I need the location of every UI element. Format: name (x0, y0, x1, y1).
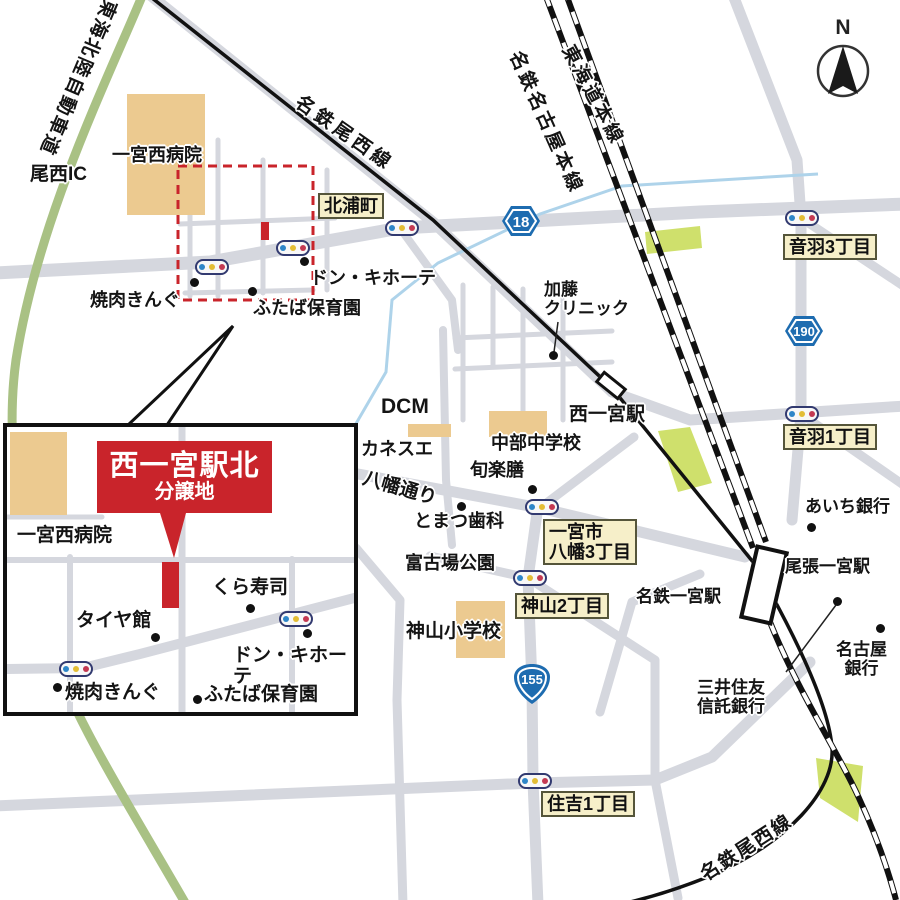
jr-meitetsu-rail-corridor (545, 0, 896, 900)
traffic-light-icon (785, 210, 819, 226)
onishi-ic-label: 尾西IC (30, 164, 87, 185)
inset-detail-map: 西一宮駅北 分譲地 一宮西病院 くら寿司 タイヤ館 ドン・キホーテ 焼肉きんぐ … (3, 423, 358, 716)
inset-yakiniku-king-label: 焼肉きんぐ (65, 682, 160, 703)
inset-hospital-block (10, 432, 67, 515)
poi-dot (190, 278, 199, 287)
site-banner-subtitle: 分譲地 (155, 482, 215, 503)
access-map: 18 190 155 N 東海北陸自動車道 名鉄尾西線 名鉄名古屋本線 東海道本… (0, 0, 900, 900)
inset-hospital-label: 一宮西病院 (17, 525, 112, 546)
otowa1-box: 音羽1丁目 (783, 424, 877, 450)
dcm-label: DCM (381, 395, 429, 419)
chubu-junior-high-label: 中部中学校 (491, 433, 581, 453)
traffic-light-icon (195, 259, 229, 275)
poi-dot (303, 629, 312, 638)
poi-dot (300, 257, 309, 266)
inset-don-quijote-label: ドン・キホーテ (233, 645, 354, 688)
site-banner: 西一宮駅北 分譲地 (97, 441, 272, 513)
kato-clinic-label: 加藤 クリニック (544, 280, 629, 318)
site-banner-title: 西一宮駅北 (109, 451, 259, 481)
route-190-shield: 190 (784, 314, 824, 353)
shunrakuzen-label: 旬楽膳 (470, 460, 524, 480)
smbc-trust-bank-label: 三井住友 信託銀行 (697, 678, 765, 716)
traffic-light-icon (518, 773, 552, 789)
owari-ichinomiya-station-label: 尾張一宮駅 (785, 557, 870, 576)
poi-dot (53, 683, 62, 692)
meitetsu-ichinomiya-station-label: 名鉄一宮駅 (636, 587, 721, 606)
hospital-label: 一宮西病院 (112, 145, 202, 165)
poi-dot (151, 633, 160, 642)
kamiyama-elementary-label: 神山小学校 (406, 621, 501, 642)
yawata3-line1: 一宮市 (549, 522, 631, 542)
route-155-shield: 155 (512, 663, 552, 710)
yawata3-line2: 八幡3丁目 (549, 542, 631, 562)
poi-dot (807, 523, 816, 532)
inset-kura-sushi-label: くら寿司 (212, 577, 288, 598)
poi-dot (876, 624, 885, 633)
poi-dot (528, 485, 537, 494)
traffic-light-icon (59, 661, 93, 677)
yakiniku-king-label: 焼肉きんぐ (90, 290, 180, 310)
kanesue-label: カネスエ (361, 439, 433, 459)
traffic-light-icon (785, 406, 819, 422)
don-quijote-label: ドン・キホーテ (310, 268, 436, 288)
poi-dot (457, 502, 466, 511)
compass-label: N (805, 18, 881, 38)
svg-text:190: 190 (793, 324, 815, 339)
traffic-light-icon (385, 220, 419, 236)
poi-dot (246, 604, 255, 613)
yawata3-box: 一宮市 八幡3丁目 (543, 519, 637, 565)
poi-dot (833, 597, 842, 606)
route-18-shield: 18 (501, 204, 541, 243)
fukoba-park-label: 富古場公園 (405, 553, 495, 573)
traffic-light-icon (276, 240, 310, 256)
otowa3-box: 音羽3丁目 (783, 234, 877, 260)
compass-north-icon: N (805, 18, 881, 108)
poi-dot (549, 351, 558, 360)
traffic-light-icon (513, 570, 547, 586)
sumiyoshi1-box: 住吉1丁目 (541, 791, 635, 817)
inset-tire-kan-label: タイヤ館 (76, 610, 151, 631)
traffic-light-icon (525, 499, 559, 515)
aichi-bank-label: あいち銀行 (805, 497, 890, 516)
svg-text:18: 18 (513, 214, 530, 231)
inset-callout-lines (128, 326, 233, 425)
site-marker-main (261, 222, 269, 240)
kitauracho-box: 北浦町 (318, 193, 384, 219)
futaba-nursery-label: ふたば保育園 (253, 298, 361, 318)
svg-text:155: 155 (521, 672, 543, 687)
nishi-ichinomiya-station-label: 西一宮駅 (569, 404, 645, 425)
traffic-light-icon (279, 611, 313, 627)
inset-futaba-nursery-label: ふたば保育園 (204, 684, 318, 705)
poi-dot (193, 695, 202, 704)
poi-dot (248, 287, 257, 296)
tomatsu-dental-label: とまつ歯科 (414, 511, 504, 531)
site-marker-inset (162, 562, 179, 608)
kamiyama2-box: 神山2丁目 (515, 593, 609, 619)
nagoya-bank-label: 名古屋 銀行 (836, 640, 887, 678)
